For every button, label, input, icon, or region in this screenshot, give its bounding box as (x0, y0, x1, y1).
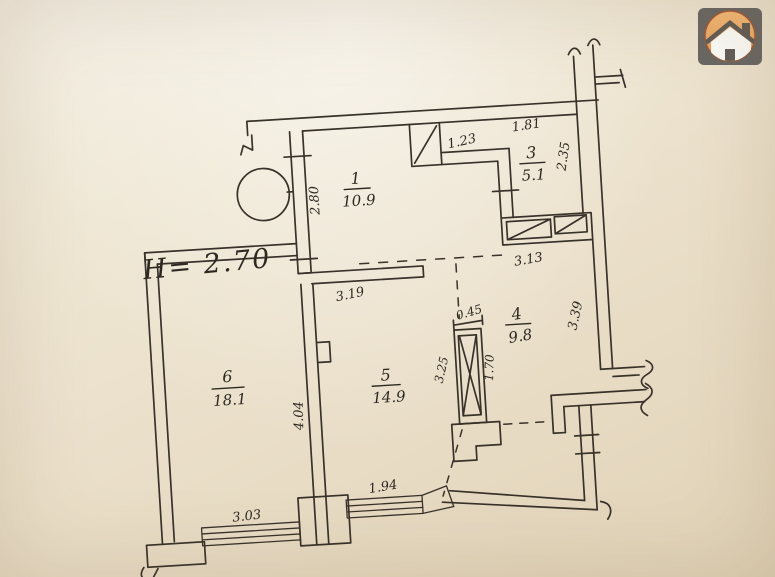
dim-window-left: 3.03 (232, 508, 262, 526)
room6-number: 6 (222, 367, 233, 387)
room3-number: 3 (526, 143, 537, 163)
dim-hall-stub: 3.19 (334, 285, 365, 305)
balcony-window (573, 405, 603, 511)
dim-vent-width: 1.23 (446, 131, 478, 152)
dim-room3-bottom: 3.13 (513, 250, 544, 270)
column-circle (236, 167, 291, 222)
dim-room3-side: 2.35 (554, 141, 573, 173)
agency-logo (698, 8, 762, 65)
room1-area: 10.9 (342, 191, 377, 211)
window-194 (346, 495, 423, 518)
dim-loggia-left: 3.25 (432, 355, 451, 384)
dim-window-right: 1.94 (368, 478, 399, 498)
floor-plan: H= 2.70 1 10.9 3 5.1 4 9.8 5 14.9 6 18.1… (110, 37, 663, 577)
room1-number: 1 (350, 169, 361, 189)
ceiling-height-label: H= 2.70 (141, 243, 273, 286)
dim-room6-right: 4.04 (292, 401, 308, 431)
dim-room1-left: 2.80 (307, 185, 324, 216)
pier-center (298, 495, 351, 546)
pier-left (147, 542, 206, 567)
room4-number: 4 (509, 304, 523, 325)
room3-window (501, 213, 592, 245)
dim-shaft-height: 1.70 (482, 354, 497, 381)
floorplan-photo: H= 2.70 1 10.9 3 5.1 4 9.8 5 14.9 6 18.1… (0, 0, 775, 577)
floor-plan-drawing: H= 2.70 1 10.9 3 5.1 4 9.8 5 14.9 6 18.1… (0, 0, 775, 577)
window-303 (202, 522, 301, 546)
dim-loggia-right: 3.39 (565, 300, 586, 332)
dim-room3-top: 1.81 (511, 116, 542, 135)
room4-area: 9.8 (507, 325, 534, 347)
room3-area: 5.1 (521, 165, 546, 184)
vent-shaft (409, 123, 442, 167)
room5-number: 5 (380, 365, 391, 385)
room6-area: 18.1 (213, 390, 247, 410)
room5-area: 14.9 (372, 387, 407, 407)
